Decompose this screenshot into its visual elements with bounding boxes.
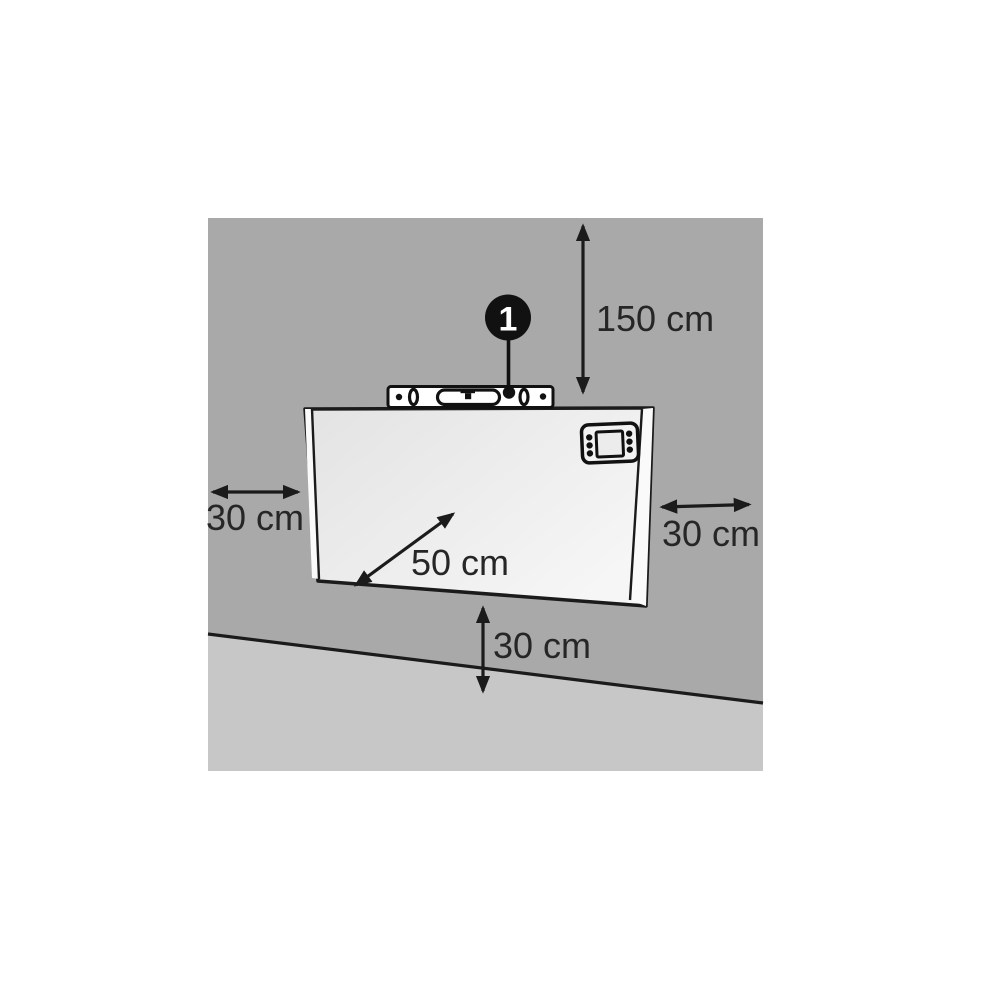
spirit-level bbox=[388, 387, 553, 408]
label-right-clearance: 30 cm bbox=[662, 513, 760, 554]
label-diagonal-size: 50 cm bbox=[411, 542, 509, 583]
label-left-clearance: 30 cm bbox=[206, 497, 304, 538]
level-bubble-marker bbox=[461, 389, 476, 393]
level-screw-hole-left bbox=[396, 394, 402, 400]
level-screw-hole-right bbox=[540, 393, 546, 399]
level-bubble-marker bbox=[465, 393, 471, 399]
diagram-canvas: 1 150 cm 30 cm 30 cm 30 cm 50 cm bbox=[0, 0, 1000, 1000]
label-bottom-clearance: 30 cm bbox=[493, 625, 591, 666]
control-display bbox=[596, 431, 624, 457]
level-slot-right bbox=[520, 389, 528, 404]
callout-number: 1 bbox=[499, 301, 518, 339]
callout-attachment-dot bbox=[503, 386, 515, 398]
level-slot-left bbox=[410, 389, 418, 404]
label-top-clearance: 150 cm bbox=[596, 298, 714, 339]
control-panel bbox=[581, 423, 639, 463]
installation-diagram: 1 150 cm 30 cm 30 cm 30 cm 50 cm bbox=[0, 0, 1000, 1000]
